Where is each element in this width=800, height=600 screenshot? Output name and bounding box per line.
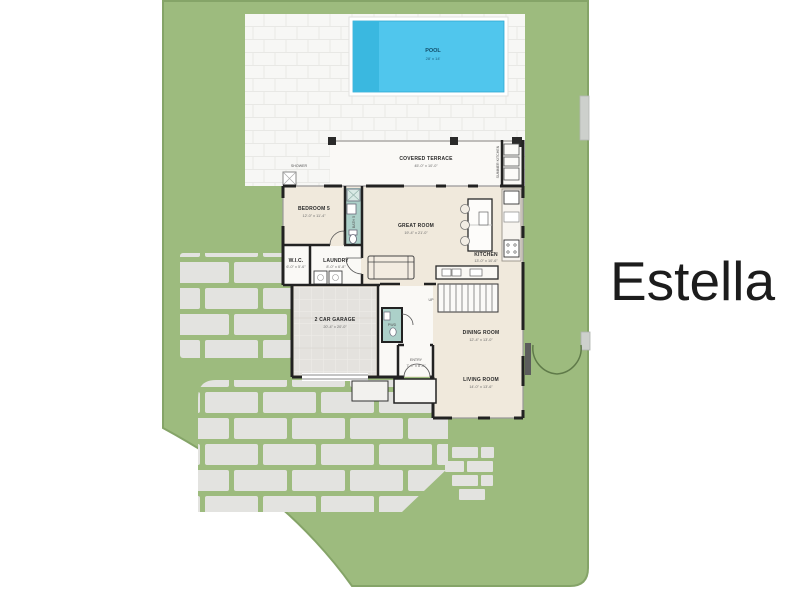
plan-title: Estella bbox=[610, 250, 775, 312]
pool-tanning-shelf bbox=[353, 21, 379, 92]
counter-icon bbox=[504, 157, 519, 166]
site-plan-svg: POOL 28' x 14' SHOWER COVERED TERRACE 45… bbox=[0, 0, 800, 600]
vanity-icon bbox=[347, 204, 356, 214]
kitchen-label: KITCHEN bbox=[474, 252, 498, 258]
powder-label: PWD bbox=[388, 323, 397, 327]
shower-label: SHOWER bbox=[291, 164, 308, 168]
terrace-dims: 45'-0" x 10'-0" bbox=[414, 164, 438, 168]
garage-dims: 20'-4" x 20'-0" bbox=[323, 325, 347, 329]
pool-label: POOL bbox=[425, 48, 441, 54]
garage-floor bbox=[294, 287, 376, 375]
dining-room-label: DINING ROOM bbox=[463, 330, 500, 336]
living-room-dims: 14'-0" x 13'-6" bbox=[469, 385, 493, 389]
fridge-icon bbox=[504, 168, 519, 180]
bedroom-5-label: BEDROOM 5 bbox=[298, 206, 330, 212]
bedroom-5-dims: 12'-0" x 11'-4" bbox=[302, 214, 326, 218]
laundry-label: LAUNDRY bbox=[323, 258, 349, 264]
fence-segment bbox=[581, 332, 590, 350]
room-bath-5: BATH 5 bbox=[346, 188, 361, 244]
terrace-column bbox=[328, 137, 336, 145]
sink-icon bbox=[384, 312, 390, 320]
sofa bbox=[368, 256, 414, 279]
cooktop-icon bbox=[504, 240, 519, 257]
stool-icon bbox=[461, 205, 470, 214]
kitchen-island bbox=[461, 199, 493, 251]
grill-icon bbox=[504, 144, 519, 155]
fridge-icon bbox=[504, 191, 519, 204]
floor-plan-canvas: POOL 28' x 14' SHOWER COVERED TERRACE 45… bbox=[0, 0, 800, 600]
wic-label: W.I.C. bbox=[289, 258, 304, 264]
kitchen-back-counter bbox=[502, 189, 521, 261]
terrace-column bbox=[450, 137, 458, 145]
stool-icon bbox=[461, 237, 470, 246]
great-room-label: GREAT ROOM bbox=[398, 223, 434, 229]
covered-terrace: COVERED TERRACE 45'-0" x 10'-0" bbox=[328, 137, 523, 186]
living-room-label: LIVING ROOM bbox=[463, 377, 499, 383]
garage-label: 2 CAR GARAGE bbox=[315, 317, 356, 323]
terrace-label: COVERED TERRACE bbox=[399, 156, 453, 162]
summer-kitchen-label: SUMMER KITCHEN bbox=[496, 145, 500, 178]
sink-icon bbox=[442, 269, 451, 276]
pool-dims: 28' x 14' bbox=[426, 56, 441, 61]
fence-segment-upper bbox=[580, 96, 589, 140]
toilet-icon bbox=[390, 328, 396, 336]
kitchen-counter bbox=[436, 266, 498, 279]
side-pad bbox=[352, 381, 388, 401]
pool: POOL 28' x 14' bbox=[349, 17, 508, 96]
dishwasher-icon bbox=[470, 269, 482, 276]
great-room-dims: 19'-4" x 21'-0" bbox=[404, 231, 428, 235]
bath-5-label: BATH 5 bbox=[352, 216, 356, 228]
kitchen-dims: 13'-0" x 10'-6" bbox=[474, 259, 498, 263]
front-porch bbox=[394, 379, 436, 403]
room-powder: PWD bbox=[382, 308, 402, 342]
gate-post bbox=[525, 343, 531, 375]
stairs-up-label: UP bbox=[429, 298, 435, 302]
stool-icon bbox=[461, 221, 470, 230]
garage-door bbox=[302, 373, 368, 381]
entry-label: ENTRY bbox=[410, 358, 423, 362]
staircase: UP bbox=[429, 284, 499, 312]
oven-icon bbox=[504, 212, 519, 222]
wic-dims: 6'-0" x 5'-6" bbox=[286, 265, 306, 269]
dining-room-dims: 12'-4" x 13'-0" bbox=[469, 338, 493, 342]
driveway-garage-approach bbox=[180, 253, 292, 358]
entry-dims: 7'-0" x 8'-0" bbox=[406, 364, 426, 368]
laundry-dims: 8'-0" x 6'-8" bbox=[326, 265, 346, 269]
summer-kitchen: SUMMER KITCHEN bbox=[496, 140, 519, 186]
island-sink-icon bbox=[479, 212, 488, 225]
